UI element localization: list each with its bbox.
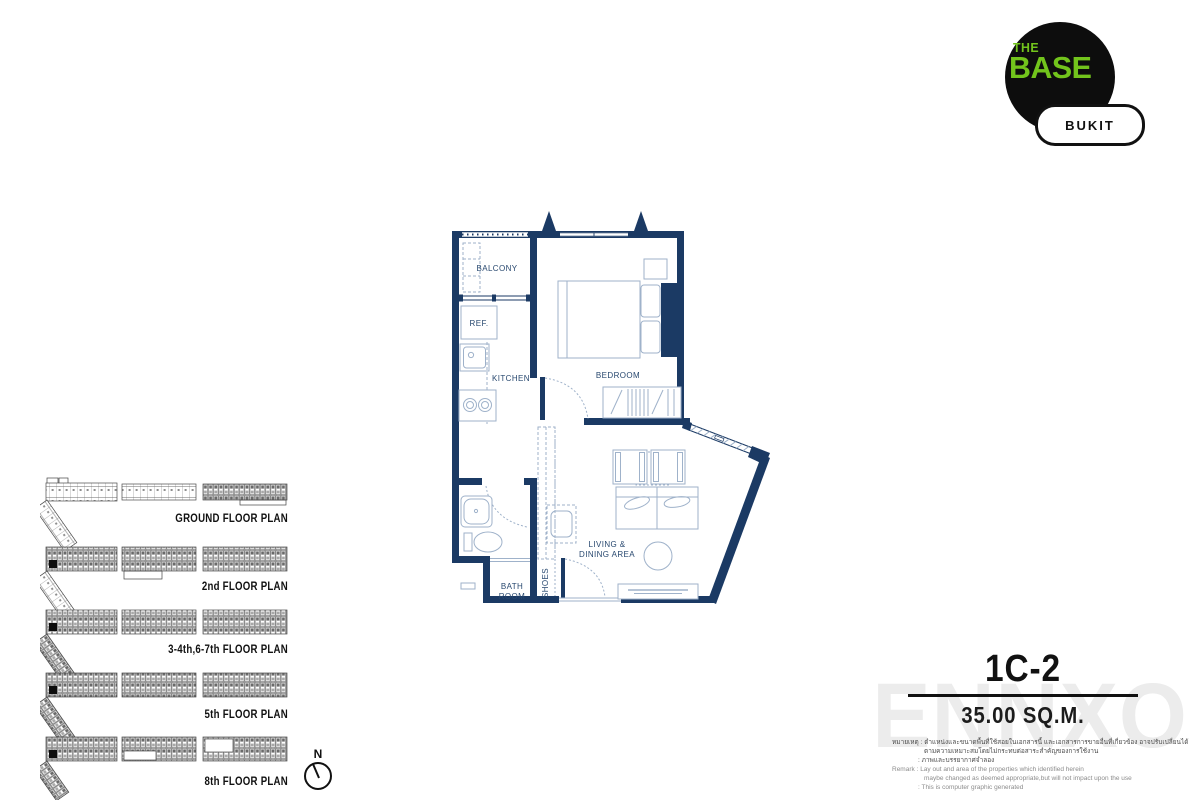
floor-label-ground: GROUND FLOOR PLAN <box>120 513 288 525</box>
built-in-closet <box>661 283 677 357</box>
toilet-tank <box>464 533 472 551</box>
brand-badge-label: BUKIT <box>1065 118 1115 133</box>
thumb-8th-floor <box>40 737 287 800</box>
bathroom-fixtures <box>461 496 502 589</box>
disclaimer-remark-1: Remark : Lay out and area of the propert… <box>892 765 1194 774</box>
unit-marker-5th <box>49 686 57 694</box>
floor-label-3467: 3-4th,6-7th FLOOR PLAN <box>120 644 288 656</box>
compass-n-label: N <box>314 747 323 761</box>
bath-sink <box>461 496 492 527</box>
label-living-2: DINING AREA <box>579 550 635 559</box>
unit-code: 1C-2 <box>922 648 1124 691</box>
north-compass: N <box>292 744 348 798</box>
brand-logo-base: BASE <box>1009 50 1091 86</box>
page: ENNXO THE BASE BUKIT 1C-2 35.00 SQ.M. หม… <box>0 0 1200 800</box>
brand-badge: BUKIT <box>1035 104 1145 146</box>
pillow <box>641 285 660 317</box>
unit-floor-plan: BALCONY REF. KITCHEN BEDROOM BATH ROOM S… <box>444 198 780 616</box>
unit-marker-8th <box>49 750 57 758</box>
label-ref: REF. <box>470 319 489 328</box>
stove <box>459 390 496 421</box>
nightstand <box>644 259 667 279</box>
label-living-1: LIVING & <box>589 540 626 549</box>
side-table <box>644 542 672 570</box>
unit-area: 35.00 SQ.M. <box>922 702 1124 729</box>
entrance-sliding-door <box>688 424 752 453</box>
shower <box>461 583 475 589</box>
label-kitchen: KITCHEN <box>492 374 530 383</box>
label-shoes: SHOES <box>541 568 550 598</box>
dining-chair <box>613 450 647 484</box>
tv-cabinet <box>618 584 698 599</box>
unit-marker-2nd <box>49 560 57 568</box>
label-bedroom: BEDROOM <box>596 371 640 380</box>
column-flag-right <box>634 211 648 231</box>
disclaimer-remark-2: maybe changed as deemed appropriate,but … <box>892 774 1194 783</box>
disclaimer-block: หมายเหตุ : ตำแหน่งและขนาดพื้นที่ใช้สอยใน… <box>892 738 1194 792</box>
unit-marker-3467 <box>49 623 57 631</box>
floor-label-2nd: 2nd FLOOR PLAN <box>120 581 288 593</box>
floor-label-8th: 8th FLOOR PLAN <box>120 776 288 788</box>
disclaimer-thai-3: : ภาพและบรรยากาศจำลอง <box>892 756 1194 765</box>
label-bath-2: ROOM <box>499 592 526 601</box>
wardrobe <box>603 387 681 418</box>
bed <box>558 281 640 358</box>
label-balcony: BALCONY <box>476 264 517 273</box>
desk-chair <box>551 511 572 537</box>
toilet <box>474 532 502 552</box>
dining-chair <box>651 450 685 484</box>
disclaimer-thai-2: ตามความเหมาะสมโดยไม่กระทบต่อสาระสำคัญของ… <box>892 747 1194 756</box>
floor-label-5th: 5th FLOOR PLAN <box>120 709 288 721</box>
column-flag-left <box>542 211 556 231</box>
disclaimer-thai-1: หมายเหตุ : ตำแหน่งและขนาดพื้นที่ใช้สอยใน… <box>892 738 1194 747</box>
label-bath-1: BATH <box>501 582 523 591</box>
compass-needle <box>313 764 319 778</box>
unit-underline <box>908 694 1138 697</box>
disclaimer-remark-3: : This is computer graphic generated <box>892 783 1194 792</box>
pillow <box>641 321 660 353</box>
